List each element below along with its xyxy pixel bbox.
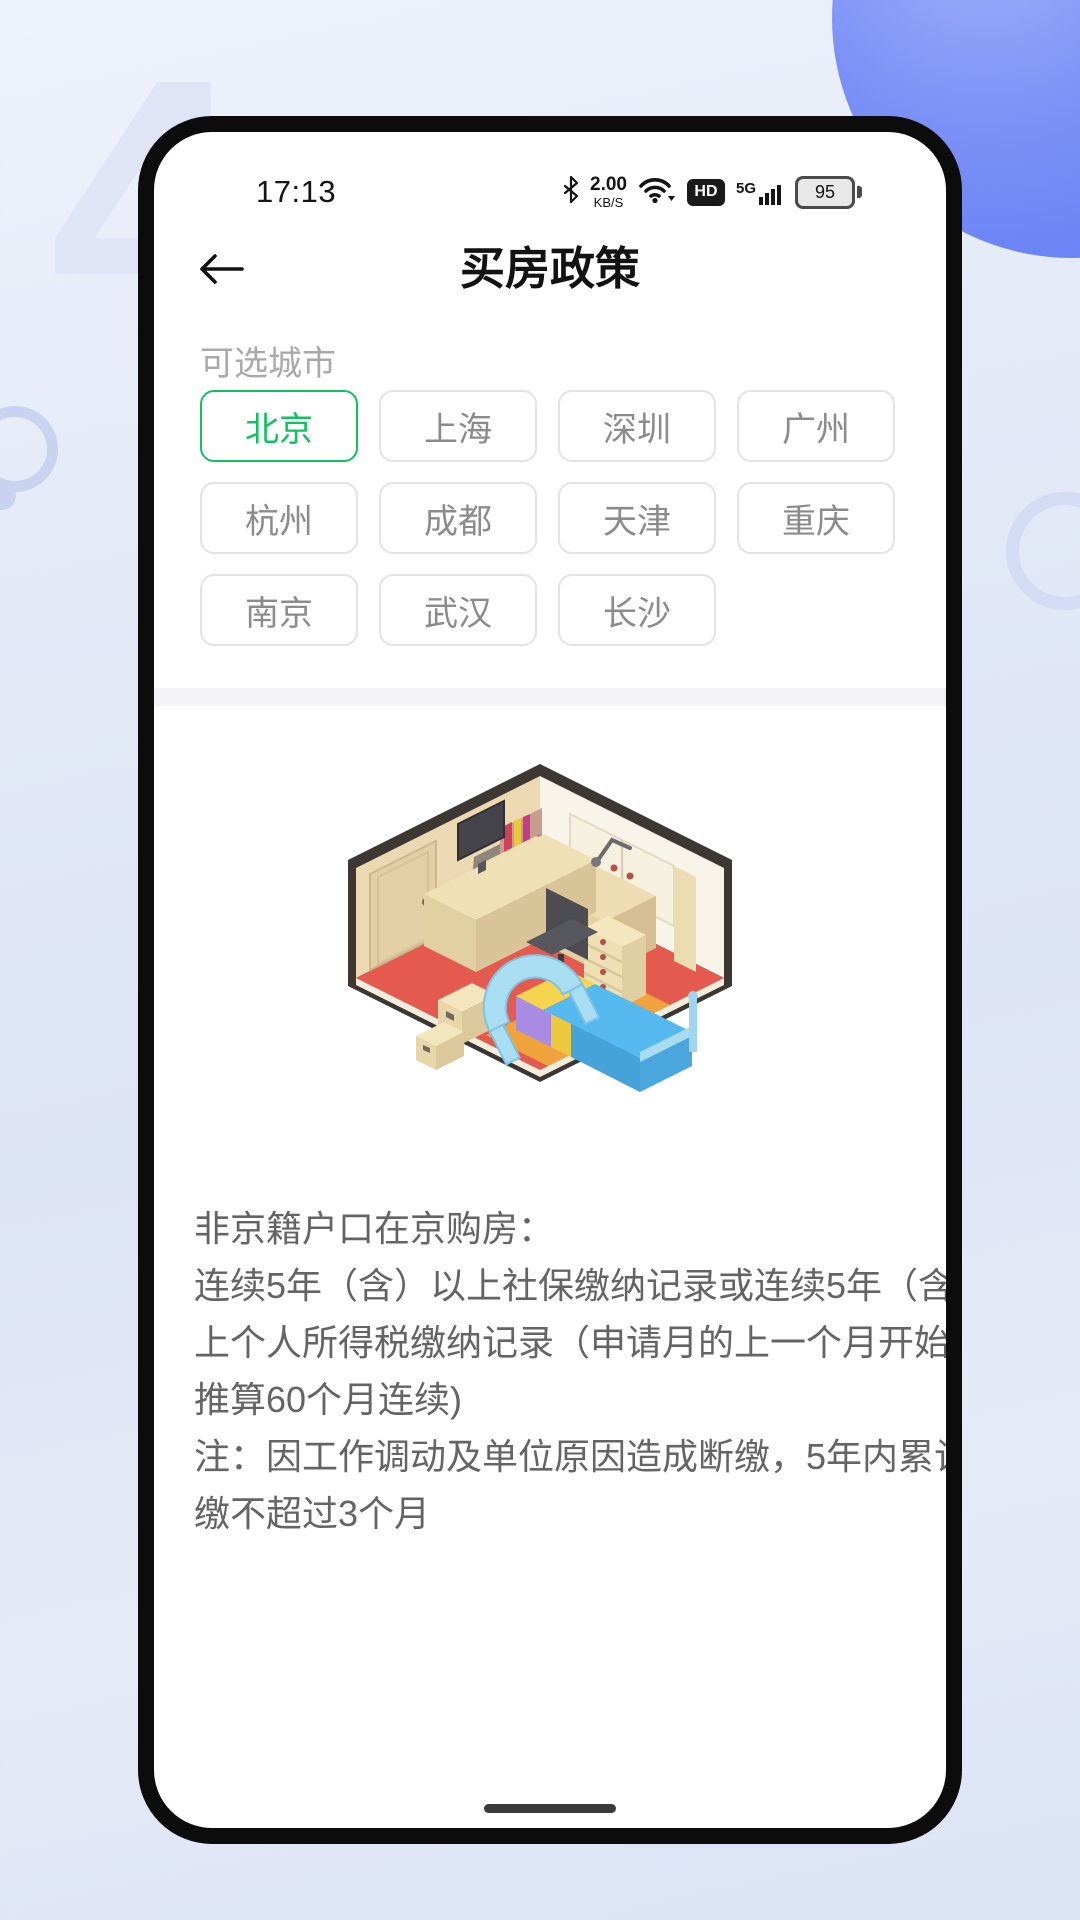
city-chip-changsha[interactable]: 长沙 [558, 574, 716, 646]
bluetooth-icon [563, 176, 579, 208]
page-title: 买房政策 [154, 238, 946, 300]
app-header: 买房政策 [154, 238, 946, 300]
city-chip-guangzhou[interactable]: 广州 [737, 390, 895, 462]
wifi-icon [638, 175, 676, 209]
city-chip-beijing[interactable]: 北京 [200, 390, 358, 462]
policy-line: 上个人所得税缴纳记录（申请月的上一个月开始往前 [194, 1314, 916, 1371]
city-chip-shanghai[interactable]: 上海 [379, 390, 537, 462]
city-chip-nanjing[interactable]: 南京 [200, 574, 358, 646]
policy-text: 非京籍户口在京购房： 连续5年（含）以上社保缴纳记录或连续5年（含）以 上个人所… [194, 1200, 916, 1542]
city-chip-chengdu[interactable]: 成都 [379, 482, 537, 554]
network-speed: 2.00 KB/S [590, 175, 627, 209]
city-chip-tianjin[interactable]: 天津 [558, 482, 716, 554]
policy-line: 连续5年（含）以上社保缴纳记录或连续5年（含）以 [194, 1257, 916, 1314]
clock: 17:13 [256, 174, 336, 210]
status-icons: 2.00 KB/S HD 5G [563, 175, 862, 209]
policy-line: 非京籍户口在京购房： [194, 1200, 916, 1257]
battery-icon: 95 [795, 176, 862, 209]
hd-badge-icon: HD [687, 179, 725, 206]
city-chip-grid: 北京 上海 深圳 广州 杭州 成都 天津 重庆 南京 武汉 长沙 [200, 390, 900, 646]
policy-line: 推算60个月连续) [194, 1371, 916, 1428]
city-chip-hangzhou[interactable]: 杭州 [200, 482, 358, 554]
section-divider [154, 688, 946, 706]
phone-screen: 17:13 2.00 KB/S HD [138, 116, 962, 1844]
policy-line: 注：因工作调动及单位原因造成断缴，5年内累计补 [194, 1428, 916, 1485]
city-chip-wuhan[interactable]: 武汉 [379, 574, 537, 646]
isometric-bedroom-illustration [340, 764, 740, 1120]
decor-ring-right [1006, 492, 1080, 610]
city-chip-chongqing[interactable]: 重庆 [737, 482, 895, 554]
city-chip-shenzhen[interactable]: 深圳 [558, 390, 716, 462]
signal-bars-icon: 5G [736, 180, 784, 205]
back-button[interactable] [198, 251, 244, 287]
city-section-label: 可选城市 [200, 336, 336, 385]
policy-line: 缴不超过3个月 [194, 1485, 916, 1542]
status-bar: 17:13 2.00 KB/S HD [154, 170, 946, 214]
decor-ring-left [0, 406, 58, 492]
home-indicator[interactable] [484, 1804, 616, 1813]
